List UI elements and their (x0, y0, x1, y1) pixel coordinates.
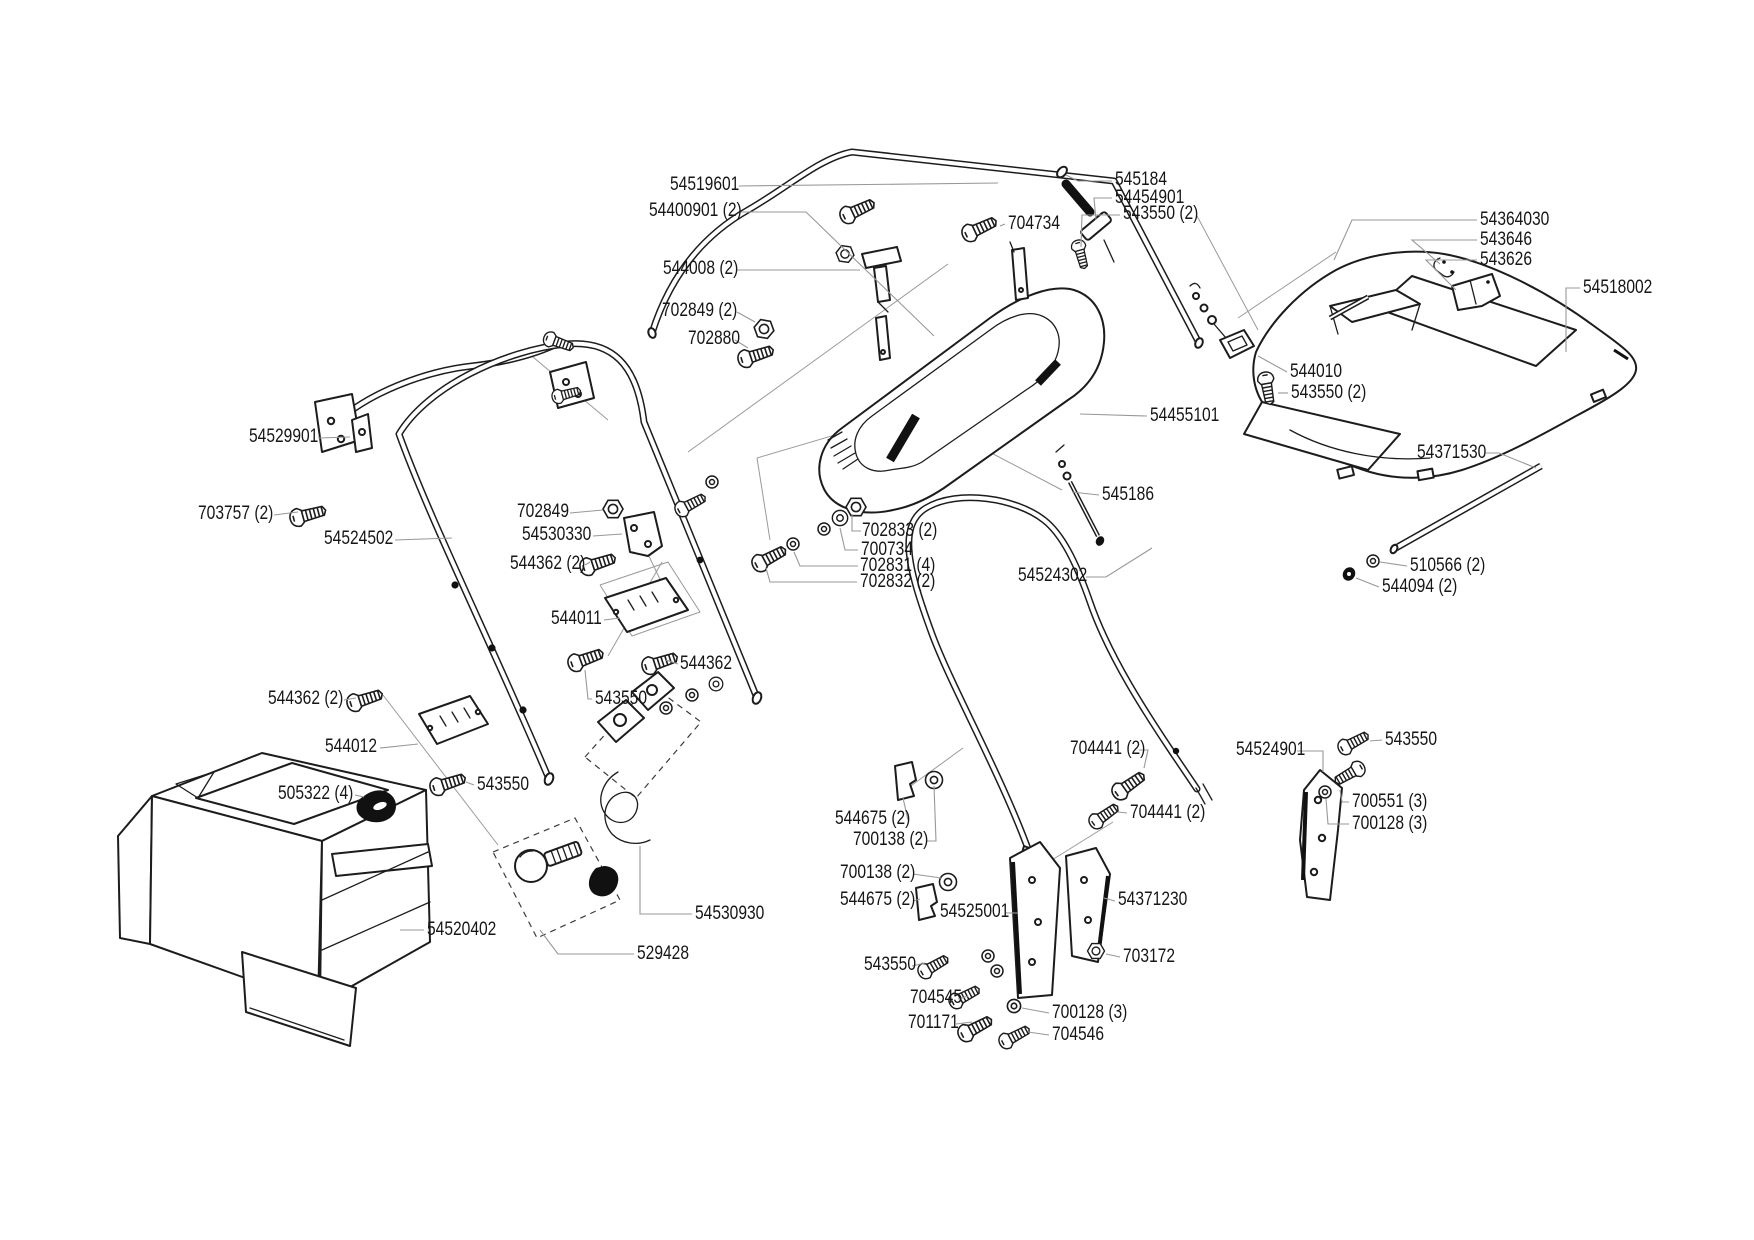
lower-handle-right-drawing (909, 498, 1212, 866)
exploded-view-drawing (0, 0, 1754, 1240)
leader-line (903, 798, 908, 820)
leader-line (766, 568, 857, 582)
upper-bail-handle-drawing (647, 152, 1204, 349)
leader-line (1106, 954, 1120, 957)
leader-line (380, 744, 418, 748)
parts-diagram-page: 5451960154400901 (2)544008 (2)702849 (2)… (0, 0, 1754, 1240)
leader-line (1370, 740, 1382, 741)
leader-line (585, 670, 592, 699)
leader-line (570, 510, 603, 513)
leader-line (1380, 562, 1407, 566)
leader-line (737, 312, 755, 322)
leader-line (926, 786, 936, 841)
leader-line (1139, 750, 1148, 768)
axle-rod-drawing (1340, 466, 1541, 583)
leader-line (593, 534, 622, 536)
leader-line (1080, 414, 1147, 416)
leader-line (739, 183, 998, 186)
leader-line (1356, 578, 1379, 587)
leader-line (1022, 1008, 1049, 1013)
leader-line (1297, 751, 1323, 772)
leader-line (956, 1022, 972, 1024)
deck-cover-drawing (1244, 252, 1636, 480)
clip-544675-a (895, 762, 916, 800)
leader-line (1086, 548, 1152, 577)
bracket-hardware-drawing (895, 728, 1372, 1052)
clip-544675-b (916, 884, 937, 920)
leader-line (794, 552, 858, 566)
leader-line (1028, 1032, 1049, 1035)
leader-line (640, 846, 692, 914)
leader-line (852, 514, 861, 531)
leader-line (466, 782, 474, 785)
leader-line (913, 874, 941, 878)
leader-line (540, 930, 634, 954)
leader-line (1000, 224, 1005, 226)
leader-line (741, 212, 934, 336)
leader-line (1118, 812, 1127, 813)
console-housing-drawing (819, 288, 1104, 512)
leader-line (735, 340, 748, 348)
